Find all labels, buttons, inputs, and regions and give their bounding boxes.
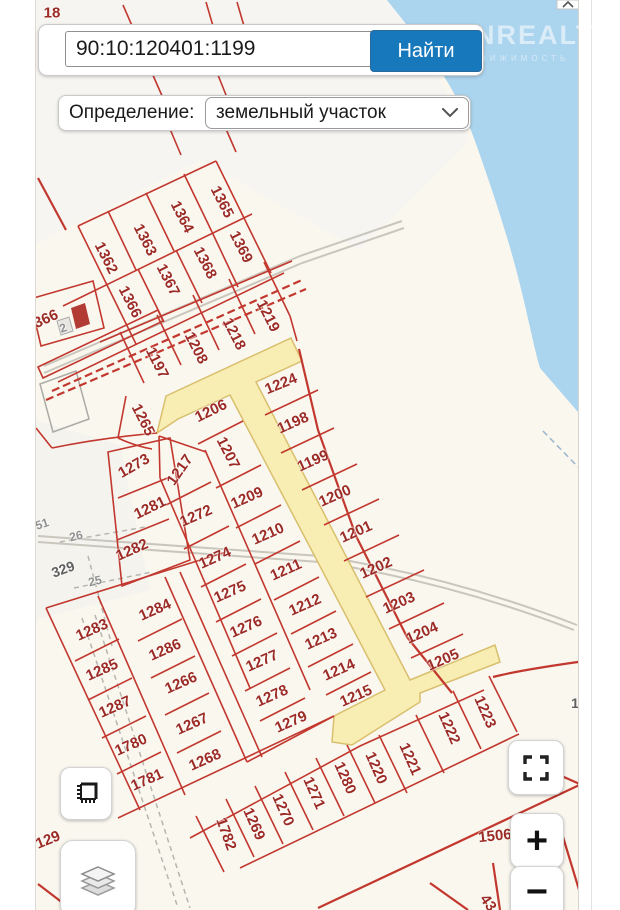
- measure-button[interactable]: [60, 767, 112, 820]
- selected-option: земельный участок: [216, 102, 442, 124]
- filter-panel: Определение: земельный участок: [58, 95, 471, 131]
- search-button[interactable]: Найти: [370, 30, 482, 72]
- layers-icon: [76, 857, 120, 901]
- ruler-icon: [72, 780, 100, 808]
- zoom-out-button[interactable]: −: [510, 866, 564, 910]
- filter-label: Определение:: [69, 102, 194, 124]
- layers-button[interactable]: [60, 840, 136, 910]
- scrollbar-track: [591, 0, 592, 910]
- object-type-select[interactable]: земельный участок: [205, 97, 469, 129]
- cadastral-map-app: 1362136313641365136613671368136911971208…: [0, 0, 620, 910]
- panel-collapse-notch[interactable]: [557, 0, 579, 9]
- left-margin: [0, 0, 36, 910]
- zoom-in-button[interactable]: +: [510, 813, 564, 868]
- fullscreen-button[interactable]: [508, 740, 564, 795]
- fullscreen-icon: [523, 755, 549, 781]
- right-margin: [578, 0, 620, 910]
- search-input[interactable]: [65, 31, 375, 67]
- search-panel: Найти: [38, 24, 484, 76]
- chevron-down-icon: [442, 108, 458, 118]
